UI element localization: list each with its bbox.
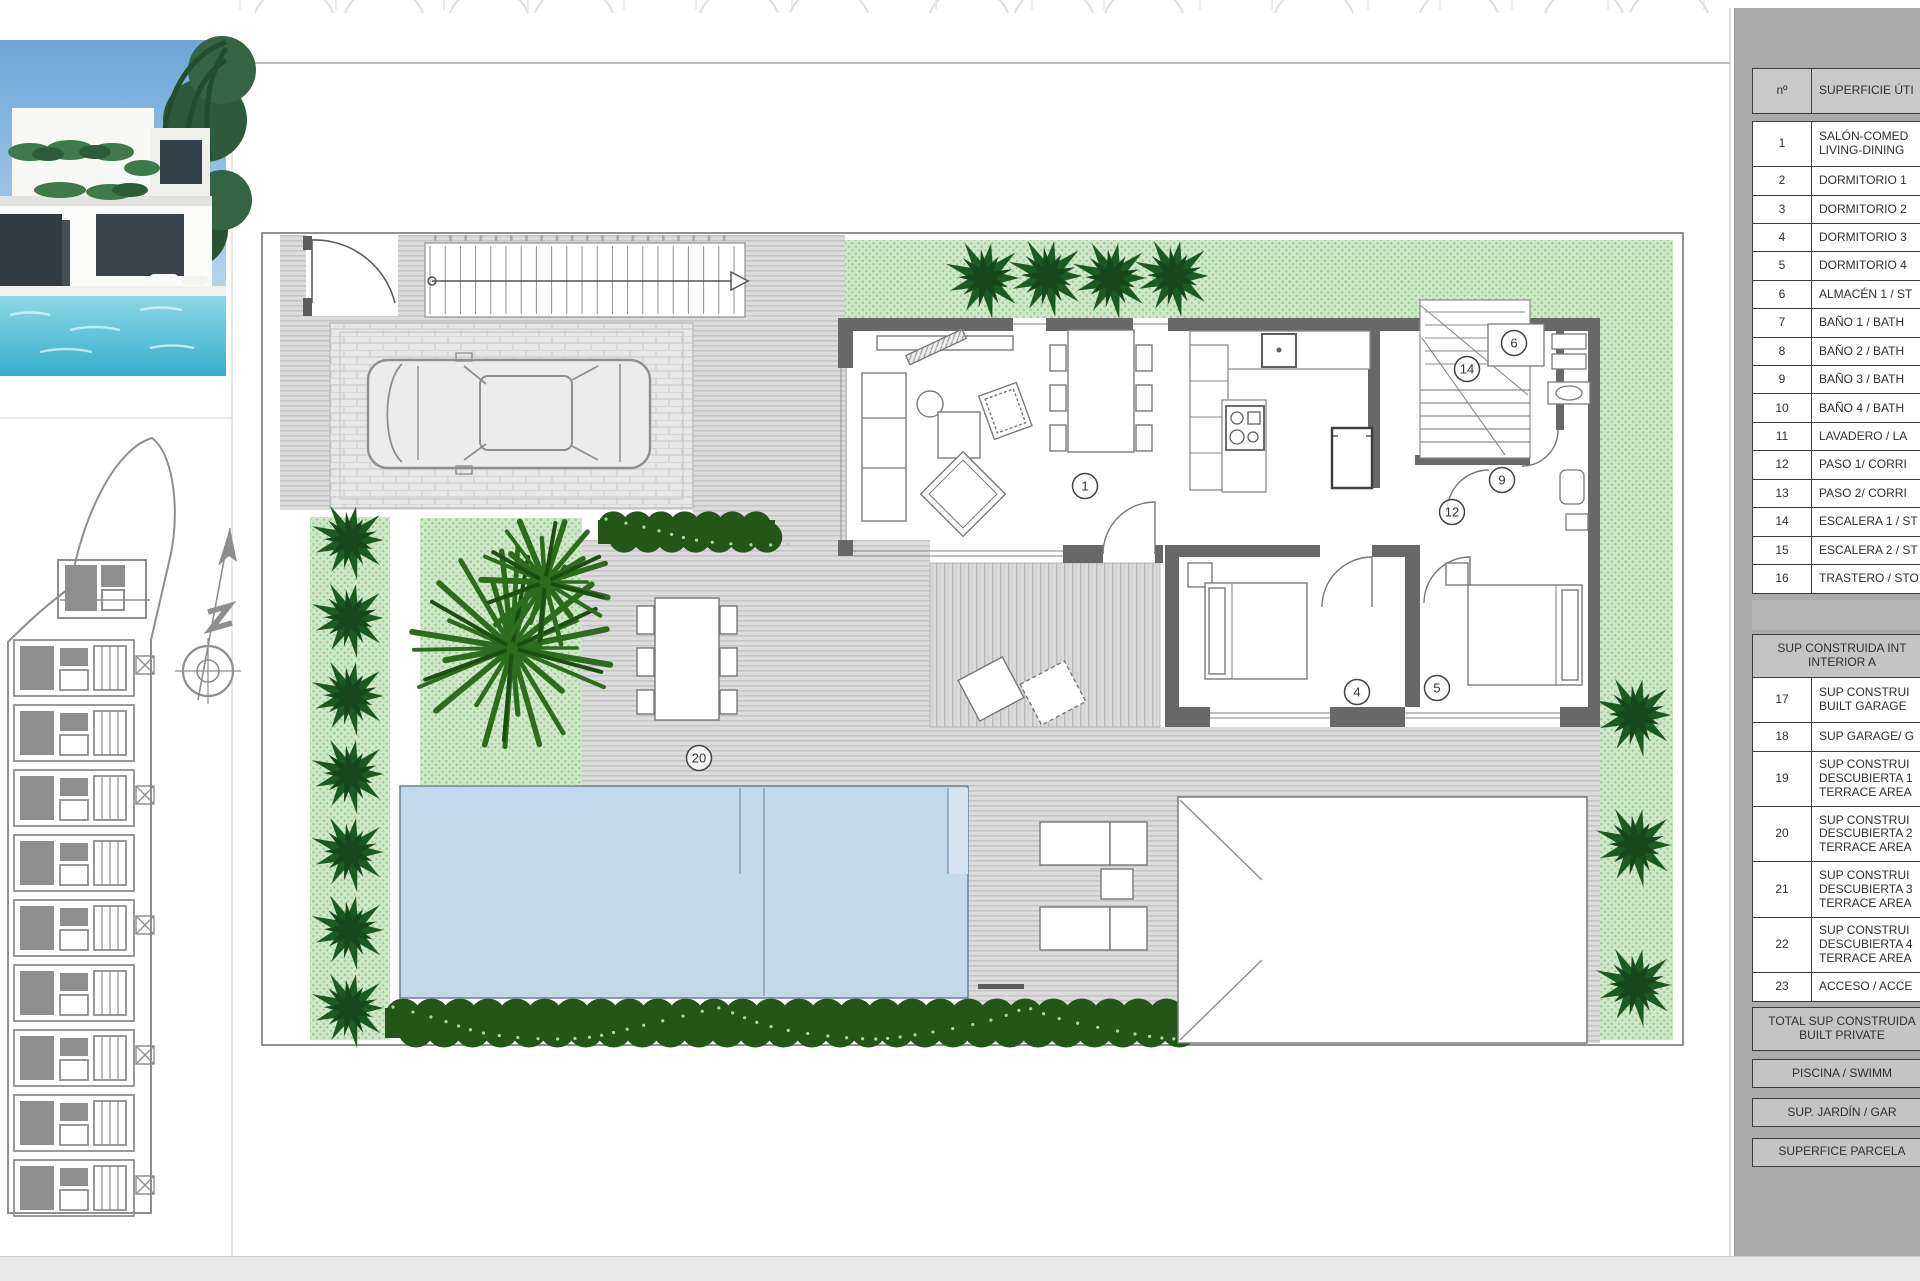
row-label: SUP CONSTRUIBUILT GARAGE xyxy=(1812,678,1920,723)
table-row: 15ESCALERA 2 / ST xyxy=(1752,536,1920,566)
row-label: BAÑO 3 / BATH xyxy=(1812,366,1920,394)
row-number: 19 xyxy=(1753,752,1812,807)
table-row: 7BAÑO 1 / BATH xyxy=(1752,308,1920,338)
row-number: 9 xyxy=(1753,366,1812,394)
row-number: 20 xyxy=(1753,807,1812,862)
table-row: 20SUP CONSTRUIDESCUBIERTA 2TERRACE AREA xyxy=(1752,806,1920,863)
row-number: 22 xyxy=(1753,918,1812,973)
table-row: 8BAÑO 2 / BATH xyxy=(1752,337,1920,367)
row-label: TOTAL SUP CONSTRUIDABUILT PRIVATE xyxy=(1753,1008,1920,1050)
table-row: PISCINA / SWIMM xyxy=(1752,1059,1920,1088)
row-label: LAVADERO / LA xyxy=(1812,423,1920,451)
row-number: 6 xyxy=(1753,281,1812,309)
area-table: nºSUPERFICIE ÚTI1SALÓN-COMEDLIVING-DININ… xyxy=(1752,70,1920,1167)
row-label: DORMITORIO 2 xyxy=(1812,196,1920,224)
row-number: 2 xyxy=(1753,167,1812,195)
row-number: 12 xyxy=(1753,451,1812,479)
row-number: 11 xyxy=(1753,423,1812,451)
room-marker-label: 12 xyxy=(1445,505,1459,520)
floor-plan: 14569121420 xyxy=(262,233,1683,1048)
garage-driveway xyxy=(330,323,693,508)
table-row: 21SUP CONSTRUIDESCUBIERTA 3TERRACE AREA xyxy=(1752,861,1920,918)
row-label: SUP GARAGE/ G xyxy=(1812,723,1920,751)
table-row: 4DORMITORIO 3 xyxy=(1752,223,1920,253)
row-label: SUP CONSTRUIDESCUBIERTA 4TERRACE AREA xyxy=(1812,918,1920,973)
exterior-staircase xyxy=(425,235,748,317)
row-number: nº xyxy=(1753,69,1812,113)
row-label: PISCINA / SWIMM xyxy=(1753,1060,1920,1087)
row-label: DORMITORIO 4 xyxy=(1812,252,1920,280)
row-label: SUPERFICIE ÚTI xyxy=(1812,69,1920,113)
room-marker-label: 20 xyxy=(692,751,706,766)
row-label: SALÓN-COMEDLIVING-DINING xyxy=(1812,122,1920,167)
table-row: 5DORMITORIO 4 xyxy=(1752,251,1920,281)
table-row: 11LAVADERO / LA xyxy=(1752,422,1920,452)
room-marker-label: 6 xyxy=(1510,336,1517,351)
table-row: 3DORMITORIO 2 xyxy=(1752,195,1920,225)
swimming-pool xyxy=(400,786,1024,998)
row-label: SUP CONSTRUIDESCUBIERTA 3TERRACE AREA xyxy=(1812,862,1920,917)
row-label: BAÑO 4 / BATH xyxy=(1812,394,1920,422)
table-row: 10BAÑO 4 / BATH xyxy=(1752,393,1920,423)
row-label: BAÑO 1 / BATH xyxy=(1812,309,1920,337)
table-row: 17SUP CONSTRUIBUILT GARAGE xyxy=(1752,677,1920,724)
row-label: SUP CONSTRUIDESCUBIERTA 1TERRACE AREA xyxy=(1812,752,1920,807)
plan-sheet-page: { "page": { "background": "#ffffff", "pa… xyxy=(0,0,1920,1280)
site-plan xyxy=(8,438,175,1216)
table-row: 23ACCESO / ACCE xyxy=(1752,972,1920,1002)
table-row: 12PASO 1/ CORRI xyxy=(1752,450,1920,480)
row-number: 5 xyxy=(1753,252,1812,280)
car-top-view xyxy=(368,353,650,474)
row-label: SUPERFICE PARCELA xyxy=(1753,1139,1920,1166)
table-row: SUPERFICE PARCELA xyxy=(1752,1138,1920,1167)
row-label: PASO 2/ CORRI xyxy=(1812,480,1920,508)
dining-table xyxy=(1050,330,1152,452)
pergola-deck xyxy=(930,563,1160,727)
cutoff-title-ruler xyxy=(240,0,1708,13)
row-label: SUP CONSTRUIDESCUBIERTA 2TERRACE AREA xyxy=(1812,807,1920,862)
row-label: ALMACÉN 1 / ST xyxy=(1812,281,1920,309)
room-marker-label: 9 xyxy=(1498,473,1505,488)
palm-plot xyxy=(1178,797,1587,1043)
outdoor-dining-set xyxy=(637,598,737,720)
table-row: SUP CONSTRUIDA INTINTERIOR A xyxy=(1752,634,1920,678)
row-number: 4 xyxy=(1753,224,1812,252)
table-row: TOTAL SUP CONSTRUIDABUILT PRIVATE xyxy=(1752,1007,1920,1051)
row-number: 3 xyxy=(1753,196,1812,224)
row-number: 17 xyxy=(1753,678,1812,723)
row-label: DORMITORIO 1 xyxy=(1812,167,1920,195)
row-number: 23 xyxy=(1753,973,1812,1001)
table-row: SUP. JARDÍN / GAR xyxy=(1752,1098,1920,1127)
row-number: 14 xyxy=(1753,508,1812,536)
table-row: 22SUP CONSTRUIDESCUBIERTA 4TERRACE AREA xyxy=(1752,917,1920,974)
row-number: 15 xyxy=(1753,537,1812,565)
page-bottom-strip xyxy=(0,1256,1920,1281)
entry-gate xyxy=(303,234,398,316)
room-marker-label: 5 xyxy=(1433,681,1440,696)
table-row: 6ALMACÉN 1 / ST xyxy=(1752,280,1920,310)
row-label: SUP CONSTRUIDA INTINTERIOR A xyxy=(1753,635,1920,677)
table-row: 16TRASTERO / STO xyxy=(1752,564,1920,594)
table-row: nºSUPERFICIE ÚTI xyxy=(1752,68,1920,114)
north-arrow-icon xyxy=(175,528,241,704)
table-row: 18SUP GARAGE/ G xyxy=(1752,722,1920,752)
villa-photo xyxy=(0,36,256,376)
row-number: 7 xyxy=(1753,309,1812,337)
room-marker-label: 14 xyxy=(1460,362,1474,377)
row-number: 16 xyxy=(1753,565,1812,593)
row-label: TRASTERO / STO xyxy=(1812,565,1920,593)
table-row: 2DORMITORIO 1 xyxy=(1752,166,1920,196)
row-number: 1 xyxy=(1753,122,1812,167)
row-number: 10 xyxy=(1753,394,1812,422)
row-label: ESCALERA 2 / ST xyxy=(1812,537,1920,565)
row-label: PASO 1/ CORRI xyxy=(1812,451,1920,479)
table-row: 14ESCALERA 1 / ST xyxy=(1752,507,1920,537)
row-label: ESCALERA 1 / ST xyxy=(1812,508,1920,536)
drawing-canvas: 14569121420 xyxy=(0,0,1920,1280)
row-number: 13 xyxy=(1753,480,1812,508)
row-number: 18 xyxy=(1753,723,1812,751)
row-label: BAÑO 2 / BATH xyxy=(1812,338,1920,366)
row-label: DORMITORIO 3 xyxy=(1812,224,1920,252)
table-row: 19SUP CONSTRUIDESCUBIERTA 1TERRACE AREA xyxy=(1752,751,1920,808)
table-row: 1SALÓN-COMEDLIVING-DINING xyxy=(1752,121,1920,168)
room-marker-label: 1 xyxy=(1081,479,1088,494)
table-row: 9BAÑO 3 / BATH xyxy=(1752,365,1920,395)
row-number: 8 xyxy=(1753,338,1812,366)
row-number: 21 xyxy=(1753,862,1812,917)
row-label: ACCESO / ACCE xyxy=(1812,973,1920,1001)
table-row: 13PASO 2/ CORRI xyxy=(1752,479,1920,509)
room-marker-label: 4 xyxy=(1353,685,1360,700)
row-label: SUP. JARDÍN / GAR xyxy=(1753,1099,1920,1126)
